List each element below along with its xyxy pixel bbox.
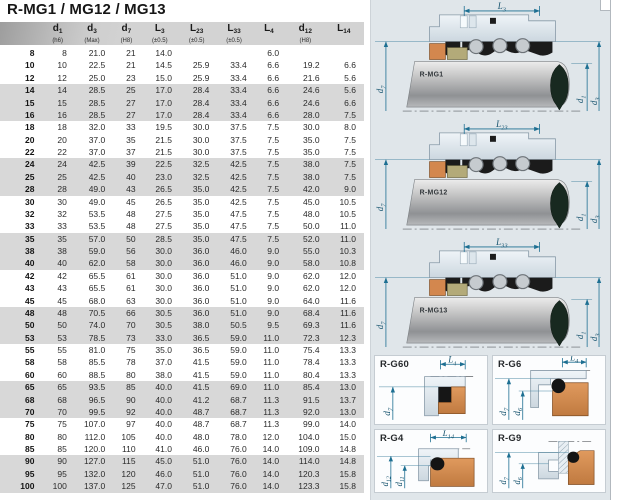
value-cell: 99.0 [287, 418, 327, 430]
value-cell: 59.0 [217, 356, 254, 368]
value-cell: 30.0 [144, 270, 180, 282]
value-cell: 7.5 [328, 171, 364, 183]
value-cell: 48 [44, 307, 74, 319]
value-cell: 17.0 [144, 84, 180, 96]
table-row: 202037.03521.530.037.57.535.07.5 [0, 134, 364, 146]
value-cell: 59.0 [217, 344, 254, 356]
value-cell: 59.0 [217, 369, 254, 381]
spring [469, 276, 483, 290]
value-cell: 58.0 [287, 257, 327, 269]
dim-label-right-outer: d3 [589, 97, 601, 105]
value-cell: 21.0 [75, 47, 113, 59]
table-row: 100100137.012547.051.076.014.0123.315.8 [0, 480, 364, 492]
value-cell: 37.0 [75, 134, 113, 146]
value-cell: 24.6 [287, 84, 327, 96]
value-cell: 7.5 [255, 134, 287, 146]
value-cell: 76.0 [217, 468, 254, 480]
value-cell: 80.4 [287, 369, 327, 381]
dim-label-right-inner: d1 [575, 95, 587, 103]
value-cell: 60 [44, 369, 74, 381]
o-ring [431, 457, 445, 470]
value-cell: 50 [44, 319, 74, 331]
value-cell: 33 [44, 220, 74, 232]
value-cell: 85.4 [287, 381, 327, 393]
diagram-label: R-MG1 [420, 71, 444, 78]
value-cell: 91.5 [287, 394, 327, 406]
value-cell: 26.5 [144, 196, 180, 208]
spec-table-section: d1(h6)d3(Max)d7(H8)L3(±0.5)L23(±0.5)L33(… [0, 22, 364, 493]
table-row: 424265.56130.036.051.09.062.012.0 [0, 270, 364, 282]
value-cell: 10.5 [328, 208, 364, 220]
value-cell: 7.5 [255, 196, 287, 208]
value-cell: 20 [44, 134, 74, 146]
value-cell: 75.4 [287, 344, 327, 356]
value-cell: 36.0 [180, 307, 217, 319]
value-cell: 33.4 [217, 59, 254, 71]
value-cell: 64.0 [287, 295, 327, 307]
value-cell: 61 [113, 282, 143, 294]
value-cell: 59.0 [217, 332, 254, 344]
value-cell: 15.0 [144, 72, 180, 84]
value-cell: 22.5 [75, 59, 113, 71]
value-cell: 56 [113, 245, 143, 257]
value-cell: 35.0 [180, 233, 217, 245]
seat-panel-label: R-G9 [498, 433, 522, 444]
value-cell: 7.5 [255, 208, 287, 220]
drive-pin [490, 18, 496, 24]
value-cell: 6.0 [255, 47, 287, 59]
value-cell: 13.3 [328, 344, 364, 356]
size-cell: 15 [0, 97, 44, 109]
side-panel: R-MG1 L3 d7 d1 d3 [370, 0, 611, 500]
value-cell: 36.0 [180, 245, 217, 257]
value-cell: 81.0 [75, 344, 113, 356]
column-header: d12(H8) [287, 22, 327, 47]
value-cell: 30 [44, 196, 74, 208]
value-cell: 41.0 [144, 443, 180, 455]
value-cell: 53.5 [75, 208, 113, 220]
seat-ring [430, 44, 446, 60]
value-cell: 38.0 [287, 171, 327, 183]
value-cell: 47.0 [144, 480, 180, 492]
value-cell: 85 [44, 443, 74, 455]
value-cell: 65 [44, 381, 74, 393]
column-header: L23(±0.5) [180, 22, 217, 47]
value-cell: 14.8 [328, 455, 364, 467]
value-cell: 43 [113, 183, 143, 195]
value-cell: 90 [44, 455, 74, 467]
size-cell: 22 [0, 146, 44, 158]
face-ring [447, 48, 467, 60]
table-row: 303049.04526.535.042.57.545.010.5 [0, 196, 364, 208]
value-cell [180, 47, 217, 59]
value-cell: 65.5 [75, 270, 113, 282]
value-cell: 19.5 [144, 121, 180, 133]
spec-table: d1(h6)d3(Max)d7(H8)L3(±0.5)L23(±0.5)L33(… [0, 22, 364, 493]
table-row: 353557.05028.535.047.57.552.011.0 [0, 233, 364, 245]
value-cell: 14.0 [255, 443, 287, 455]
value-cell: 28.5 [75, 84, 113, 96]
size-cell: 68 [0, 394, 44, 406]
value-cell: 123.3 [287, 480, 327, 492]
value-cell: 120.0 [75, 443, 113, 455]
value-cell: 6.6 [255, 84, 287, 96]
column-header: d7(H8) [113, 22, 143, 47]
value-cell: 112.0 [75, 431, 113, 443]
value-cell: 127.0 [75, 455, 113, 467]
value-cell: 7.5 [328, 146, 364, 158]
value-cell: 43 [44, 282, 74, 294]
seal-cross-section: R-MG12 L23 d7 d1 d3 [373, 120, 606, 233]
size-cell: 30 [0, 196, 44, 208]
spring [493, 275, 507, 289]
value-cell: 61 [113, 270, 143, 282]
sleeve-hatched [558, 441, 568, 473]
value-cell: 27.5 [144, 220, 180, 232]
value-cell: 35.0 [180, 208, 217, 220]
table-row: 484870.56630.536.051.09.068.411.6 [0, 307, 364, 319]
value-cell: 65.5 [75, 282, 113, 294]
value-cell: 51.0 [180, 455, 217, 467]
seat-ring [430, 162, 446, 178]
value-cell: 11.6 [328, 319, 364, 331]
column-header [0, 22, 44, 47]
diagram-label: R-MG12 [420, 189, 448, 196]
spec-table-head: d1(h6)d3(Max)d7(H8)L3(±0.5)L23(±0.5)L33(… [0, 22, 364, 47]
size-cell: 65 [0, 381, 44, 393]
value-cell: 50.5 [217, 319, 254, 331]
value-cell: 125 [113, 480, 143, 492]
value-cell: 26.5 [144, 183, 180, 195]
value-cell: 36.0 [180, 270, 217, 282]
value-cell: 48 [113, 220, 143, 232]
table-row: 141428.52517.028.433.46.624.65.6 [0, 84, 364, 96]
seat-panel-rg6: R-G6 L4 d7 d6 [492, 355, 606, 425]
value-cell: 30.5 [144, 307, 180, 319]
value-cell: 14.0 [255, 480, 287, 492]
value-cell: 68.7 [217, 418, 254, 430]
value-cell: 48.0 [180, 431, 217, 443]
value-cell: 33 [113, 121, 143, 133]
table-row: 606088.58038.041.559.011.080.413.3 [0, 369, 364, 381]
value-cell: 11.3 [255, 394, 287, 406]
value-cell: 28 [44, 183, 74, 195]
value-cell: 30.0 [144, 295, 180, 307]
value-cell: 33.4 [217, 72, 254, 84]
value-cell: 35 [44, 233, 74, 245]
size-cell: 28 [0, 183, 44, 195]
value-cell: 11.0 [255, 332, 287, 344]
face-ring [447, 166, 467, 178]
table-row: 535378.57333.036.559.011.072.312.3 [0, 332, 364, 344]
value-cell: 37.0 [144, 356, 180, 368]
value-cell: 12 [44, 72, 74, 84]
value-cell: 32 [44, 208, 74, 220]
value-cell: 25 [113, 84, 143, 96]
table-row: 434365.56130.036.051.09.062.012.0 [0, 282, 364, 294]
value-cell: 42.5 [217, 158, 254, 170]
value-cell: 37.5 [217, 146, 254, 158]
value-cell: 55.0 [287, 245, 327, 257]
spring [493, 157, 507, 171]
value-cell: 9.0 [255, 295, 287, 307]
value-cell: 55 [44, 344, 74, 356]
size-cell: 18 [0, 121, 44, 133]
value-cell: 45.0 [287, 196, 327, 208]
value-cell: 30.0 [144, 245, 180, 257]
value-cell: 32.5 [180, 171, 217, 183]
value-cell: 9.0 [255, 282, 287, 294]
size-cell: 70 [0, 406, 44, 418]
value-cell: 51.0 [217, 307, 254, 319]
size-cell: 55 [0, 344, 44, 356]
value-cell: 69.0 [217, 381, 254, 393]
value-cell: 46.0 [217, 257, 254, 269]
value-cell: 14.0 [144, 47, 180, 59]
value-cell: 7.5 [255, 146, 287, 158]
value-cell: 53.5 [75, 220, 113, 232]
seal-diagram: R-MG1 L3 d7 d1 d3 [373, 2, 606, 115]
value-cell: 85 [113, 381, 143, 393]
value-cell: 50.0 [287, 220, 327, 232]
dim-label-right-inner: d1 [575, 213, 587, 221]
seat-ring [430, 280, 446, 296]
column-header: d3(Max) [75, 22, 113, 47]
value-cell: 37 [113, 146, 143, 158]
size-cell: 48 [0, 307, 44, 319]
value-cell: 42 [44, 270, 74, 282]
value-cell: 11.0 [255, 381, 287, 393]
table-row: 222237.03721.530.037.57.535.07.5 [0, 146, 364, 158]
value-cell: 28.5 [75, 109, 113, 121]
value-cell: 76.0 [217, 443, 254, 455]
value-cell: 21 [113, 47, 143, 59]
spring [493, 39, 507, 53]
size-cell: 25 [0, 171, 44, 183]
value-cell: 9.0 [328, 183, 364, 195]
value-cell: 11.0 [255, 369, 287, 381]
value-cell: 69.3 [287, 319, 327, 331]
value-cell: 47.5 [217, 220, 254, 232]
value-cell: 15.8 [328, 468, 364, 480]
value-cell: 37.5 [217, 134, 254, 146]
value-cell: 74.0 [75, 319, 113, 331]
size-cell: 10 [0, 59, 44, 71]
value-cell: 75 [113, 344, 143, 356]
value-cell: 45 [113, 196, 143, 208]
value-cell: 70.5 [75, 307, 113, 319]
value-cell: 7.5 [255, 183, 287, 195]
value-cell: 68.7 [217, 406, 254, 418]
value-cell: 68.4 [287, 307, 327, 319]
value-cell: 51.0 [217, 295, 254, 307]
value-cell: 41.5 [180, 369, 217, 381]
value-cell: 11.0 [328, 233, 364, 245]
table-row: 252542.54023.032.542.57.538.07.5 [0, 171, 364, 183]
size-cell: 32 [0, 208, 44, 220]
value-cell: 33.4 [217, 84, 254, 96]
value-cell: 11.3 [255, 406, 287, 418]
value-cell: 38.0 [180, 319, 217, 331]
value-cell: 37.5 [217, 121, 254, 133]
seat-panel-label: R-G6 [498, 359, 522, 370]
value-cell: 30.5 [144, 319, 180, 331]
value-cell: 85.5 [75, 356, 113, 368]
value-cell: 115 [113, 455, 143, 467]
value-cell: 62.0 [287, 270, 327, 282]
value-cell: 7.5 [328, 134, 364, 146]
value-cell: 105 [113, 431, 143, 443]
value-cell: 22.5 [144, 158, 180, 170]
value-cell: 7.5 [328, 158, 364, 170]
value-cell: 12.0 [328, 270, 364, 282]
value-cell: 10.3 [328, 245, 364, 257]
value-cell [328, 47, 364, 59]
value-cell: 25.0 [75, 72, 113, 84]
value-cell: 42.5 [75, 171, 113, 183]
spring [516, 275, 530, 289]
size-cell: 60 [0, 369, 44, 381]
value-cell: 14 [44, 84, 74, 96]
value-cell: 107.0 [75, 418, 113, 430]
value-cell: 76.0 [217, 455, 254, 467]
size-cell: 24 [0, 158, 44, 170]
value-cell: 7.5 [255, 233, 287, 245]
value-cell: 46.0 [180, 443, 217, 455]
value-cell: 8.0 [328, 121, 364, 133]
drive-pin [490, 254, 496, 260]
value-cell: 51.0 [217, 282, 254, 294]
value-cell: 137.0 [75, 480, 113, 492]
set-screw [460, 16, 467, 28]
value-cell: 16 [44, 109, 74, 121]
value-cell [287, 47, 327, 59]
value-cell: 40.0 [144, 418, 180, 430]
value-cell: 41.5 [180, 381, 217, 393]
value-cell: 21.6 [287, 72, 327, 84]
value-cell: 36.5 [180, 332, 217, 344]
value-cell: 53 [44, 332, 74, 344]
value-cell: 24 [44, 158, 74, 170]
value-cell: 15.8 [328, 480, 364, 492]
value-cell: 30.0 [144, 282, 180, 294]
value-cell: 14.0 [255, 455, 287, 467]
value-cell: 95 [44, 468, 74, 480]
value-cell: 7.5 [255, 220, 287, 232]
value-cell: 40.0 [144, 394, 180, 406]
value-cell: 73 [113, 332, 143, 344]
size-cell: 75 [0, 418, 44, 430]
value-cell: 42.5 [217, 196, 254, 208]
value-cell: 6.6 [255, 59, 287, 71]
table-row: 151528.52717.028.433.46.624.66.6 [0, 97, 364, 109]
size-cell: 42 [0, 270, 44, 282]
value-cell: 78 [113, 356, 143, 368]
value-cell: 40.0 [144, 431, 180, 443]
value-cell: 24.6 [287, 97, 327, 109]
value-cell: 7.5 [328, 109, 364, 121]
value-cell: 6.6 [255, 72, 287, 84]
seat-panels: R-G60 L4 d7 R-G6 [374, 355, 606, 493]
shaft [407, 179, 570, 225]
set-screw [469, 16, 476, 28]
size-cell: 95 [0, 468, 44, 480]
column-header: L4 [255, 22, 287, 47]
value-cell: 47.5 [217, 233, 254, 245]
value-cell: 48.0 [287, 208, 327, 220]
value-cell: 63 [113, 295, 143, 307]
value-cell: 52.0 [287, 233, 327, 245]
value-cell: 25.9 [180, 72, 217, 84]
value-cell: 10 [44, 59, 74, 71]
column-header: L14 [328, 22, 364, 47]
value-cell: 38.0 [144, 369, 180, 381]
value-cell: 110 [113, 443, 143, 455]
value-cell: 66 [113, 307, 143, 319]
catalog-page: { "title": "R-MG1 / MG12 / MG13", "table… [0, 0, 617, 500]
value-cell: 14.0 [328, 418, 364, 430]
value-cell: 46.0 [217, 245, 254, 257]
value-cell: 22 [44, 146, 74, 158]
table-row: 161628.52717.028.433.46.628.07.5 [0, 109, 364, 121]
size-cell: 50 [0, 319, 44, 331]
value-cell: 93.5 [75, 381, 113, 393]
value-cell: 46.0 [144, 468, 180, 480]
table-row: 707099.59240.048.768.711.392.013.0 [0, 406, 364, 418]
set-screw [469, 134, 476, 146]
table-row: 282849.04326.535.042.57.542.09.0 [0, 183, 364, 195]
seal-cross-section: R-MG13 L33 d7 d1 d3 [373, 238, 606, 351]
value-cell: 19.2 [287, 59, 327, 71]
table-row: 454568.06330.036.051.09.064.011.6 [0, 295, 364, 307]
value-cell: 68.7 [217, 394, 254, 406]
size-cell: 8 [0, 47, 44, 59]
value-cell: 25.9 [180, 59, 217, 71]
value-cell: 25 [44, 171, 74, 183]
value-cell: 80 [44, 431, 74, 443]
seal-diagram: R-MG12 L23 d7 d1 d3 [373, 120, 606, 233]
value-cell: 6.6 [328, 59, 364, 71]
value-cell: 30.0 [180, 146, 217, 158]
dim-label-l4: L4 [569, 356, 579, 365]
table-row: 9595132.012046.051.076.014.0120.315.8 [0, 468, 364, 480]
value-cell: 8 [44, 47, 74, 59]
dim-label-top: L3 [497, 2, 506, 13]
value-cell: 11.6 [328, 295, 364, 307]
value-cell [217, 47, 254, 59]
table-row: 7575107.09740.048.768.711.399.014.0 [0, 418, 364, 430]
value-cell: 32.0 [75, 121, 113, 133]
value-cell: 27.5 [144, 208, 180, 220]
value-cell: 41.5 [180, 356, 217, 368]
value-cell: 11.6 [328, 307, 364, 319]
value-cell: 92 [113, 406, 143, 418]
value-cell: 12.0 [255, 431, 287, 443]
column-header: d1(h6) [44, 22, 74, 47]
column-header: L33(±0.5) [217, 22, 254, 47]
value-cell: 57.0 [75, 233, 113, 245]
value-cell: 28.4 [180, 109, 217, 121]
value-cell: 42.5 [217, 171, 254, 183]
diagram-label: R-MG13 [420, 307, 448, 314]
spring [516, 157, 530, 171]
value-cell: 114.0 [287, 455, 327, 467]
spring [469, 158, 483, 172]
value-cell: 13.3 [328, 356, 364, 368]
size-cell: 58 [0, 356, 44, 368]
value-cell: 35.0 [180, 183, 217, 195]
size-cell: 85 [0, 443, 44, 455]
